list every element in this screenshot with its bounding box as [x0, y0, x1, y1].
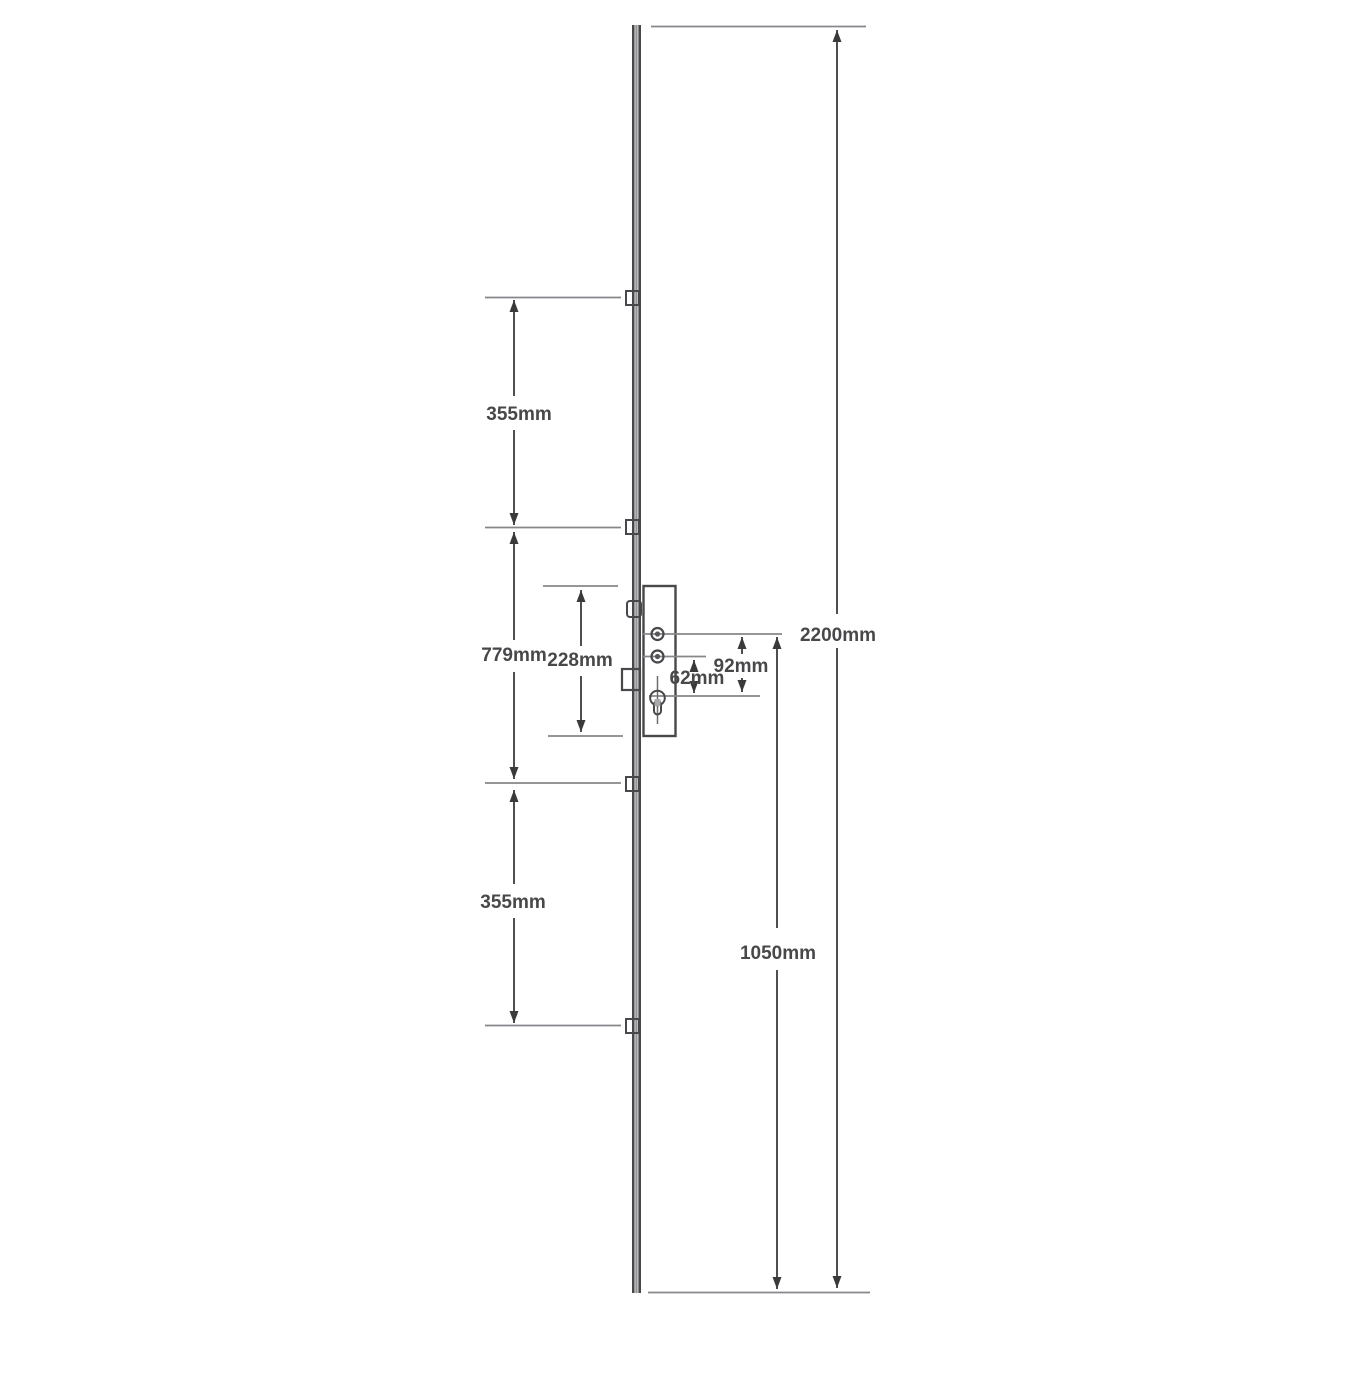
- dimension-label-2200: 2200mm: [800, 625, 876, 646]
- faceplate-bar: [632, 25, 641, 1293]
- spindle-hole-lower-center: [655, 654, 660, 659]
- dimension-228: 228mm: [547, 590, 613, 732]
- dimension-1050: 1050mm: [740, 637, 816, 1289]
- diagram-svg: 355mm 779mm 228mm 62mm 92mm 1050mm 2200m…: [0, 0, 1356, 1387]
- dimension-label-1050: 1050mm: [740, 943, 816, 964]
- dimension-label-228: 228mm: [547, 650, 613, 671]
- dimension-355-bottom: 355mm: [480, 790, 546, 1023]
- lock-dimension-diagram: 355mm 779mm 228mm 62mm 92mm 1050mm 2200m…: [0, 0, 1356, 1387]
- dimension-355-top: 355mm: [486, 300, 552, 525]
- dimension-2200: 2200mm: [800, 30, 876, 1288]
- dimension-label-355-top: 355mm: [486, 404, 552, 425]
- dimension-label-355-bottom: 355mm: [480, 892, 546, 913]
- dimension-779: 779mm: [481, 532, 547, 779]
- dimension-label-92: 92mm: [714, 656, 769, 677]
- spindle-hole-upper-center: [655, 631, 660, 636]
- dimension-label-779: 779mm: [481, 645, 547, 666]
